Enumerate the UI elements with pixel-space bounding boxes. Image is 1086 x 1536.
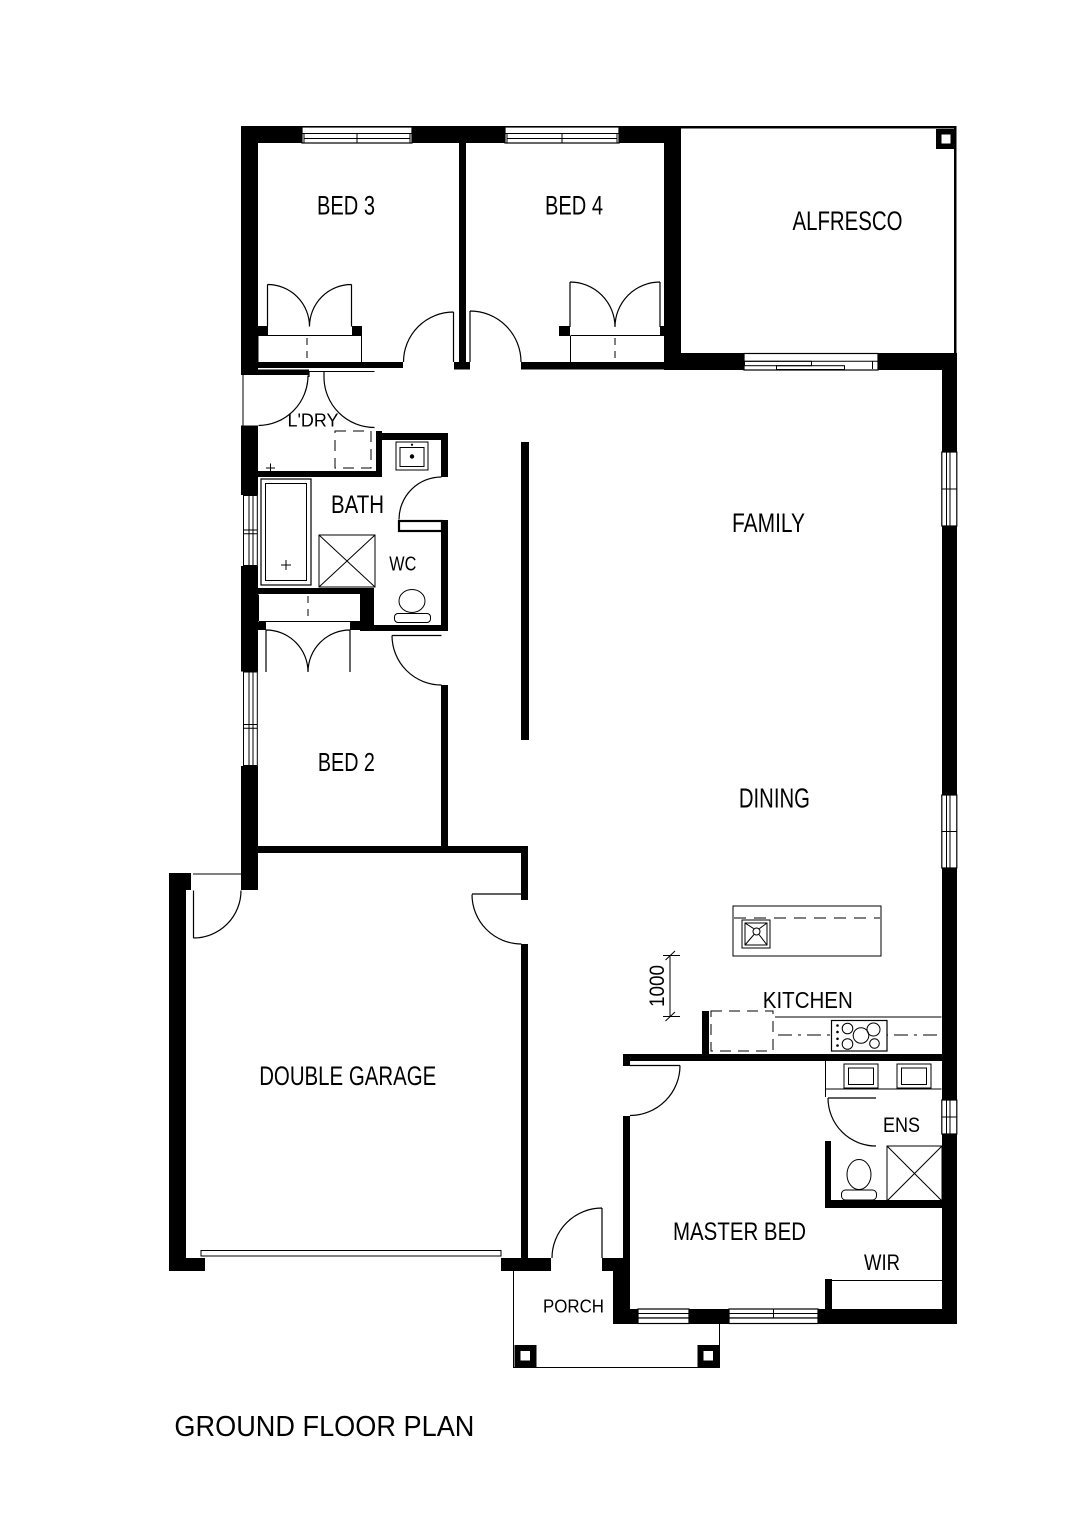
svg-text:FAMILY: FAMILY (732, 508, 805, 538)
svg-text:L'DRY: L'DRY (288, 410, 339, 430)
svg-text:MASTER BED: MASTER BED (673, 1218, 806, 1246)
svg-text:WIR: WIR (864, 1250, 900, 1275)
svg-text:GROUND FLOOR PLAN: GROUND FLOOR PLAN (174, 1411, 474, 1443)
svg-text:BED 3: BED 3 (317, 191, 375, 221)
svg-text:BED 2: BED 2 (318, 747, 375, 777)
svg-text:DINING: DINING (739, 782, 810, 813)
svg-text:WC: WC (389, 553, 416, 575)
svg-text:BATH: BATH (331, 491, 384, 519)
svg-text:DOUBLE GARAGE: DOUBLE GARAGE (259, 1061, 436, 1091)
svg-text:ENS: ENS (883, 1114, 920, 1137)
svg-text:PORCH: PORCH (543, 1297, 604, 1317)
svg-text:1000: 1000 (646, 965, 669, 1007)
svg-text:BED 4: BED 4 (545, 191, 603, 221)
svg-text:KITCHEN: KITCHEN (763, 987, 853, 1013)
svg-text:ALFRESCO: ALFRESCO (793, 206, 903, 236)
